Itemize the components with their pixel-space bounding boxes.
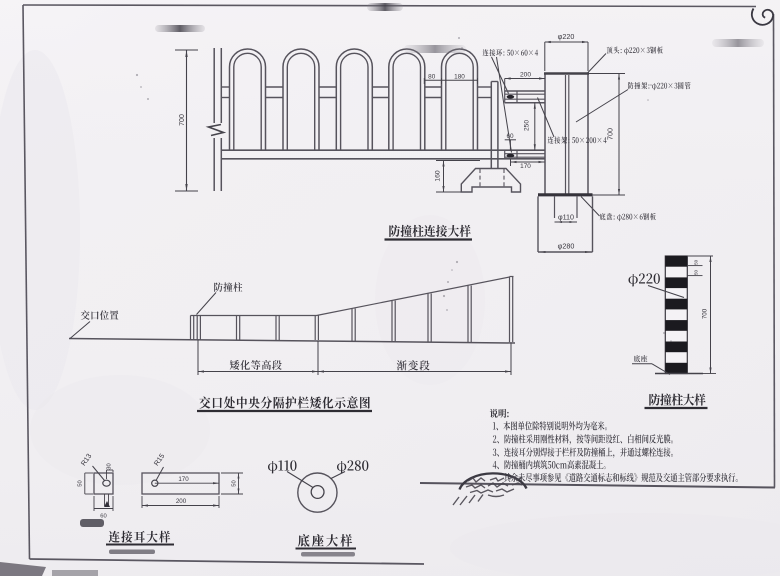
- svg-text:180: 180: [454, 74, 465, 81]
- svg-text:φ110: φ110: [558, 213, 574, 222]
- svg-text:170: 170: [520, 163, 531, 170]
- svg-text:50: 50: [232, 480, 238, 486]
- svg-text:170: 170: [178, 476, 189, 483]
- svg-text:φ220: φ220: [558, 32, 575, 41]
- svg-text:160: 160: [435, 170, 442, 182]
- svg-text:700: 700: [702, 308, 709, 319]
- svg-text:200: 200: [176, 498, 187, 505]
- svg-text:50: 50: [694, 270, 699, 276]
- svg-text:50: 50: [694, 259, 699, 265]
- svg-text:50: 50: [78, 480, 84, 486]
- svg-text:250: 250: [524, 120, 531, 131]
- svg-text:80: 80: [428, 74, 436, 81]
- svg-text:60: 60: [506, 133, 514, 140]
- svg-text:30: 30: [107, 463, 113, 469]
- svg-text:700: 700: [606, 128, 615, 140]
- svg-text:700: 700: [179, 114, 186, 126]
- svg-text:60: 60: [100, 514, 106, 520]
- svg-text:200: 200: [520, 71, 531, 78]
- svg-text:φ280: φ280: [558, 242, 575, 251]
